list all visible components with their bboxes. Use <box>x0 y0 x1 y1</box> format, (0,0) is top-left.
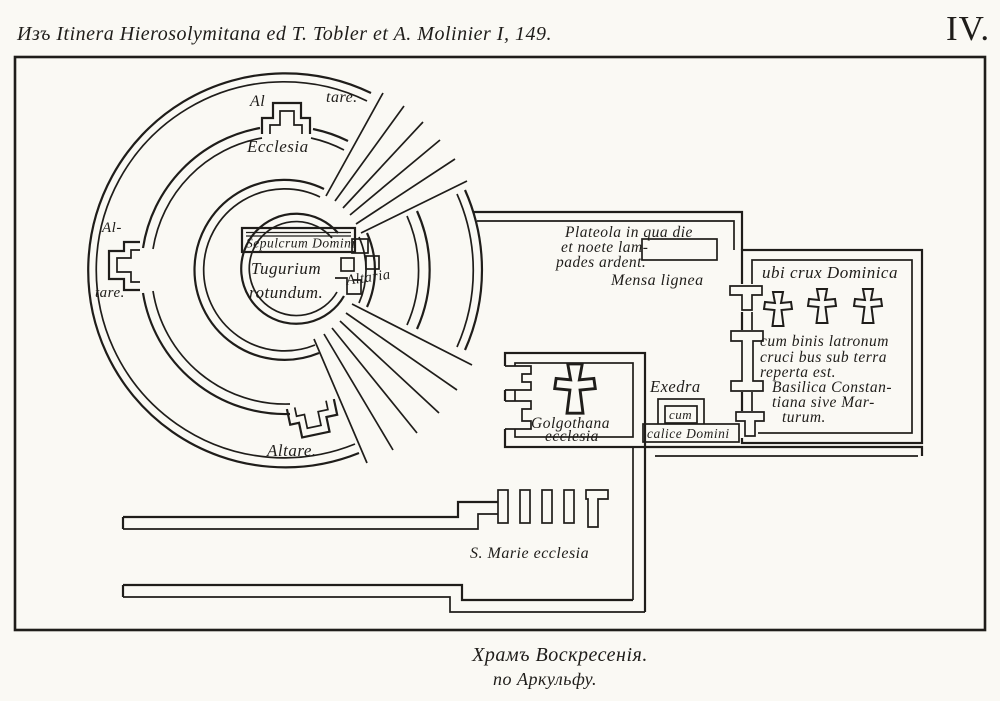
plate-number: IV. <box>946 9 990 48</box>
sepulcrum-domini-tomb: Sepulcrum Domini <box>242 228 368 253</box>
plan-drawing: Изъ Itinera Hierosolymitana ed T. Tobler… <box>0 0 1000 701</box>
west-altar-apse <box>109 242 140 290</box>
source-citation: Изъ Itinera Hierosolymitana ed T. Tobler… <box>16 23 552 45</box>
cum-label: cum <box>669 407 692 422</box>
caption-subtitle: по Аркульфу. <box>493 669 597 689</box>
mensa-lignea-table <box>642 239 717 260</box>
altaria-label: Altaria <box>344 267 391 289</box>
altare-top-label-left: Al <box>249 93 265 110</box>
middle-wall-arc <box>311 138 344 150</box>
engraving-plate: Изъ Itinera Hierosolymitana ed T. Tobler… <box>0 0 1000 701</box>
caption-title: Храмъ Воскресенія. <box>471 644 648 666</box>
tugurium-label-line2: rotundum. <box>249 283 323 302</box>
south-boundary-wall <box>645 447 922 456</box>
sepulcrum-label: Sepulcrum Domini <box>246 236 356 251</box>
altare-west-label-top: Al- <box>101 220 122 236</box>
exedra-label: Exedra <box>649 377 701 396</box>
middle-wall-arc <box>407 216 419 325</box>
basilica-text-line1: cum binis latronum <box>760 333 889 350</box>
rotunda-anastasis: Sepulcrum Domini Al tare. Ecclesia Al- t… <box>88 73 482 467</box>
middle-wall-arc <box>153 138 262 249</box>
southeast-entrance-passages <box>314 304 472 463</box>
plateola-courtyard: Plateola in qua die et noete lam- pades … <box>473 212 742 289</box>
cross-icon <box>764 292 792 326</box>
north-altar-apse <box>262 103 310 134</box>
basilica-text-line6: turum. <box>782 409 826 426</box>
exedra: Exedra cum calice Domini <box>643 377 739 442</box>
altare-west-label-bottom: tare. <box>95 285 125 301</box>
south-altar-apse <box>287 399 340 439</box>
north-atrium-wall <box>123 502 498 517</box>
cross-icon <box>854 289 882 323</box>
cross-icon <box>555 364 596 413</box>
outer-wall-arc <box>457 194 473 347</box>
plateola-label-line3: pades ardent. <box>555 254 646 271</box>
colonnade-columns <box>498 490 608 527</box>
doorway-pillar <box>731 331 763 391</box>
s-marie-label: S. Marie ecclesia <box>470 545 589 562</box>
altare-top-label-right: tare. <box>326 89 358 106</box>
middle-wall-arc <box>143 293 290 414</box>
golgothana-ecclesia: Golgothana ecclesia <box>499 353 645 447</box>
ecclesia-label: Ecclesia <box>246 137 309 156</box>
golgotha-label-line2: ecclesia <box>545 428 599 445</box>
basilica-constantiana: ubi crux Dominica cum binis latronum cru… <box>730 250 922 443</box>
tugurium-label-line1: Tugurium <box>251 259 321 278</box>
northeast-entrance-passages <box>326 93 467 233</box>
ubi-crux-dominica-label: ubi crux Dominica <box>762 263 898 282</box>
calice-domini-label: calice Domini <box>647 426 730 441</box>
altare-south-label: Altare. <box>266 441 317 460</box>
cross-icon <box>808 289 836 323</box>
mensa-lignea-label: Mensa lignea <box>610 272 704 289</box>
s-marie-ecclesia: S. Marie ecclesia <box>123 447 645 612</box>
